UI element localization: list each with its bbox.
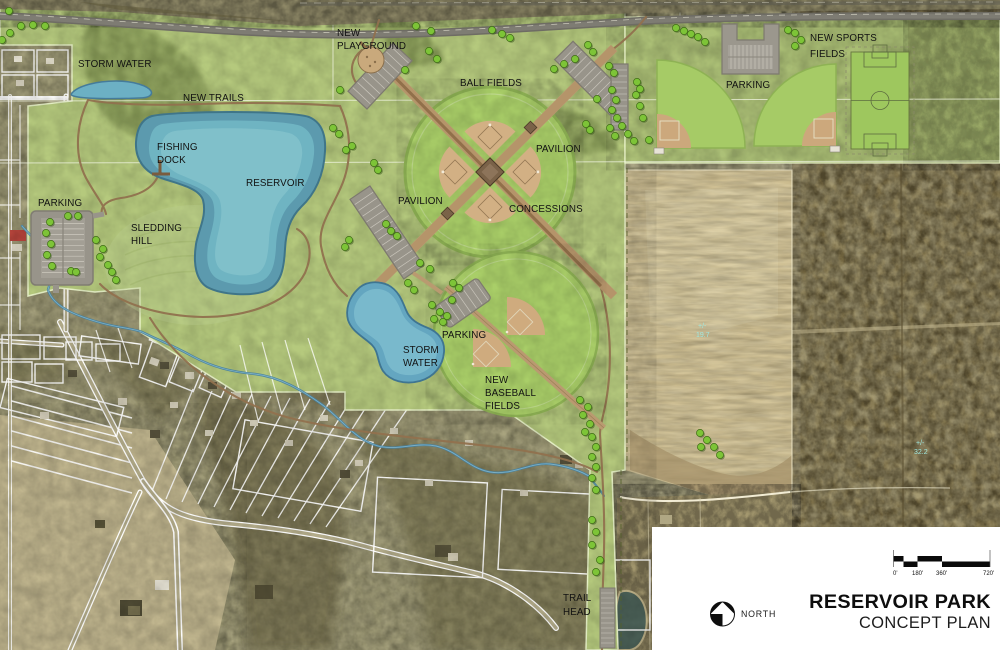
svg-text:PARKING: PARKING — [442, 330, 486, 341]
svg-text:NEW SPORTS: NEW SPORTS — [810, 33, 877, 44]
svg-text:+/-: +/- — [916, 440, 925, 447]
svg-text:360': 360' — [936, 571, 947, 577]
svg-text:NEW TRAILS: NEW TRAILS — [183, 93, 244, 104]
svg-text:PAVILION: PAVILION — [398, 196, 443, 207]
svg-text:FIELDS: FIELDS — [485, 401, 520, 412]
svg-text:NEW: NEW — [337, 28, 361, 39]
svg-text:FIELDS: FIELDS — [810, 49, 845, 60]
svg-text:0': 0' — [893, 571, 897, 577]
svg-text:CONCEPT PLAN: CONCEPT PLAN — [859, 614, 991, 632]
svg-text:TRAIL: TRAIL — [563, 593, 592, 604]
svg-text:NEW: NEW — [485, 375, 509, 386]
svg-text:PLAYGROUND: PLAYGROUND — [337, 41, 406, 52]
svg-text:PARKING: PARKING — [726, 80, 770, 91]
svg-text:BASEBALL: BASEBALL — [485, 388, 536, 399]
svg-text:720': 720' — [983, 571, 994, 577]
svg-text:STORM WATER: STORM WATER — [78, 59, 152, 70]
svg-text:CONCESSIONS: CONCESSIONS — [509, 204, 583, 215]
svg-text:FISHING: FISHING — [157, 142, 198, 153]
svg-text:32.2: 32.2 — [914, 449, 928, 456]
svg-text:HILL: HILL — [131, 236, 153, 247]
svg-text:NORTH: NORTH — [741, 609, 776, 619]
svg-text:RESERVOIR: RESERVOIR — [246, 178, 305, 189]
svg-text:+/-: +/- — [698, 323, 707, 330]
svg-text:HEAD: HEAD — [563, 607, 591, 618]
svg-text:PAVILION: PAVILION — [536, 144, 581, 155]
svg-text:180': 180' — [912, 571, 923, 577]
svg-text:SLEDDING: SLEDDING — [131, 223, 182, 234]
svg-text:STORM: STORM — [403, 345, 439, 356]
svg-text:RESERVOIR PARK: RESERVOIR PARK — [809, 591, 991, 613]
svg-text:WATER: WATER — [403, 358, 438, 369]
svg-text:BALL FIELDS: BALL FIELDS — [460, 78, 522, 89]
svg-text:PARKING: PARKING — [38, 198, 82, 209]
svg-text:19.7: 19.7 — [696, 332, 710, 339]
svg-text:DOCK: DOCK — [157, 155, 186, 166]
